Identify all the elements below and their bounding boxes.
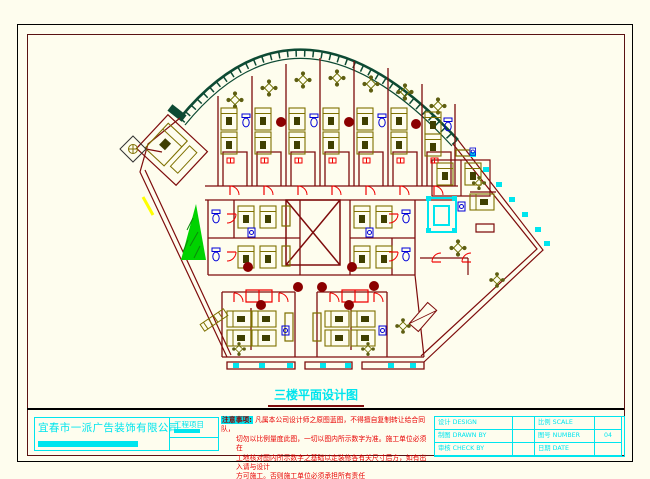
table-chairs-icon [328,69,345,86]
toilet-icon [402,248,410,261]
bed-icon [238,206,254,228]
bed-icon [391,108,407,130]
bed-icon [351,330,375,346]
door-arc-icon [230,186,239,195]
walls-right-wing [415,160,496,357]
bed-icon [252,311,276,327]
toilet-icon [242,114,250,127]
diamond-column-marker [120,136,146,162]
red-fixture-icon [261,158,268,163]
plan-title: 三楼平面设计图 [268,386,364,407]
round-table-icon [344,117,354,127]
bed-icon [260,246,276,268]
round-table-icon [293,282,303,292]
table-chairs-icon [232,342,246,356]
round-table-icon [369,281,379,291]
door-arc-icon [389,252,398,261]
door-arc-icon [332,186,341,195]
door-arc-icon [389,214,398,223]
red-fixture-icon [227,158,234,163]
round-table-icon [347,262,357,272]
bed-icon [391,132,407,154]
cell-number-label: 图号 NUMBER [535,430,595,443]
notes-block: 注意事项: 凡属本公司设计师之原图蓝图，不得擅自复制转让给合同队， 切勿以比例量… [221,416,433,479]
bed-icon [357,132,373,154]
table-chairs-icon [226,91,243,108]
door-arc-icon [298,186,307,195]
bed-icon [227,311,251,327]
toilet-icon [402,210,410,223]
round-table-icon [243,262,253,272]
door-arc-icon [434,186,443,195]
door-arc-icon [366,186,375,195]
blue-fixture-icon [248,228,255,237]
bed-icon [255,108,271,130]
door-arc-icon [279,293,288,302]
project-underline-bar [174,429,200,433]
blue-fixture-icon [379,326,386,335]
bed-icon [354,206,370,228]
blue-fixture-icon [458,202,465,211]
middle-band-furniture [212,206,410,292]
cell-number-value: 04 [595,430,622,443]
ladder-shelf [200,309,228,331]
sofa-set [428,198,456,232]
titleblock-top-line [27,408,624,410]
table-chairs-icon [395,318,410,333]
company-name: 宜春市一派广告装饰有限公司 [38,420,168,435]
bed-icon [260,206,276,228]
cell-scale-value [595,417,622,430]
bed-icon [376,206,392,228]
door-arc-icon [227,252,236,261]
door-arc-icon [234,293,243,302]
cell-design-label: 设计 DESIGN [435,417,513,430]
round-table-icon [411,119,421,129]
red-fixture-icon [363,158,370,163]
cell-checkby-value [513,443,535,456]
bed-icon [289,132,305,154]
toilet-icon [212,210,220,223]
bed-icon [221,132,237,154]
red-fixture-icon [329,158,336,163]
cell-scale-label: 比例 SCALE [535,417,595,430]
cell-checkby-label: 审核 CHECK BY [435,443,513,456]
bed-icon [221,108,237,130]
notes-line-4: 方可施工。否则施工单位必须承担所有责任 [236,472,433,479]
plant-triangle [181,204,206,260]
bed-icon [325,311,349,327]
right-exterior-wall [421,140,543,362]
notes-line-2: 切勿以比例量度此图，一切以图内所示数字为准。施工单位必须在 [236,435,433,454]
notes-heading: 注意事项: [221,416,253,424]
table-chairs-icon [361,342,375,356]
cell-design-value [513,417,535,430]
table-chairs-icon [489,272,504,287]
round-table-icon [276,117,286,127]
door-arc-icon [374,293,383,302]
door-arc-icon [264,186,273,195]
round-table-icon [344,300,354,310]
bed-icon [325,330,349,346]
curved-curtain-wall [167,50,458,146]
toilet-icon [212,248,220,261]
bed-icon [323,108,339,130]
blue-fixture-icon [366,228,373,237]
table-chairs-icon [449,239,466,256]
table-chairs-icon [260,79,277,96]
company-underline-bar [38,441,138,447]
cell-drawnby-value [513,430,535,443]
bed-icon [376,246,392,268]
bed-icon [351,311,375,327]
toilet-icon [378,114,386,127]
bed-icon [323,132,339,154]
table-chairs-icon [294,71,311,88]
round-table-icon [256,300,266,310]
stair-rect [409,302,436,331]
elevator-shaft [286,200,340,265]
bed-icon [255,132,271,154]
round-table-icon [317,282,327,292]
door-arc-icon [400,186,409,195]
cell-date-label: 日期 DATE [535,443,595,456]
door-arc-icon [330,293,339,302]
notes-line-1: 注意事项: 凡属本公司设计师之原图蓝图，不得擅自复制转让给合同队， [221,416,433,435]
drawing-sheet: 三楼平面设计图 宜春市一派广告装饰有限公司 工程项目 注意事项: 凡属本公司设计… [0,0,650,479]
toilet-icon [310,114,318,127]
cell-drawnby-label: 制图 DRAWN BY [435,430,513,443]
bed-icon [252,330,276,346]
notes-line-3: 工地核对图内所示数字之基础以定装修各有关尺寸后方，如有出入请与设计 [236,454,433,473]
yellow-wall-mark [143,197,153,215]
project-box-divider [169,437,218,438]
red-fixture-icon [295,158,302,163]
red-fixture-icon [397,158,404,163]
bed-icon [289,108,305,130]
bed-icon [357,108,373,130]
cell-date-value [595,443,622,456]
title-table: 设计 DESIGN 比例 SCALE 制图 DRAWN BY 图号 NUMBER… [434,416,625,457]
